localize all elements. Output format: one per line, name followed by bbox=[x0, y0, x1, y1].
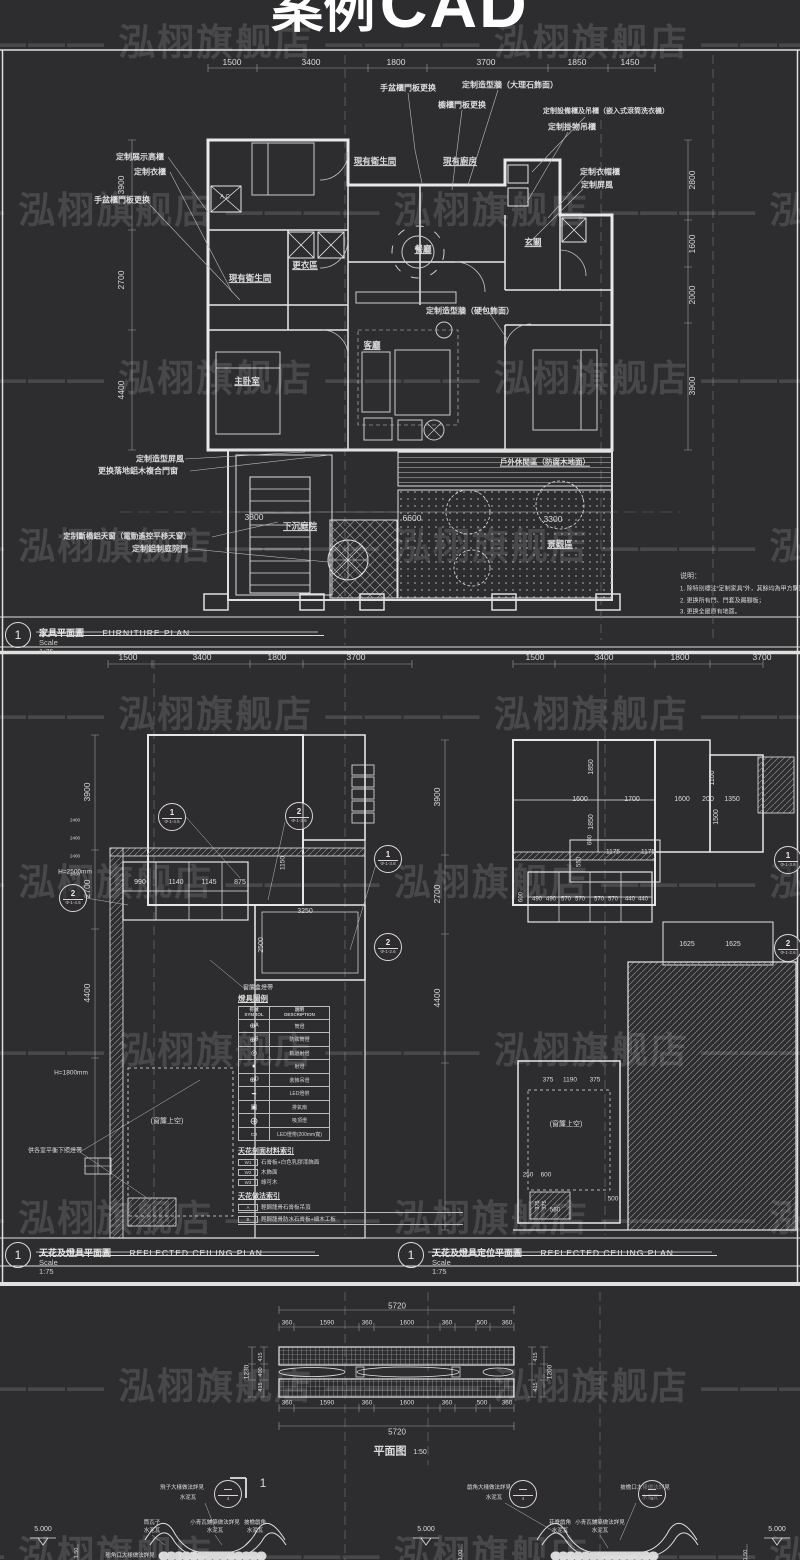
p2-dims: 3900 bbox=[83, 783, 93, 802]
p1-callouts: 手盆櫃門板更换 bbox=[380, 83, 436, 92]
titleblock-en: REFLECTED CEILING PLAN bbox=[129, 1248, 262, 1258]
p2-inner-dims: 1140 bbox=[168, 879, 183, 887]
detail-marker-number: — bbox=[224, 1486, 232, 1494]
p3-dims: 1600 bbox=[400, 1319, 414, 1326]
p2-inner-dims: 1600 bbox=[572, 796, 588, 804]
p2-dims: 1500 bbox=[119, 653, 138, 663]
p3-dims: 360 bbox=[442, 1399, 453, 1406]
detail-marker-number: — bbox=[519, 1486, 527, 1494]
p2-inner-dims: 440 bbox=[638, 897, 648, 904]
p2-inner-dims: 1600 bbox=[674, 796, 690, 804]
p1-dims-top: 1850 bbox=[568, 58, 587, 68]
p2-inner-dims: 1350 bbox=[724, 796, 740, 804]
detail-marker-ref: Φ-1-3.8 bbox=[780, 863, 795, 868]
p1-callouts: 定制鋁制庭院門 bbox=[132, 544, 188, 553]
light-description: 射燈 bbox=[270, 1060, 330, 1074]
detail-marker: 2Φ-1-2.6 bbox=[374, 933, 402, 961]
p2-inner-dims: 1700 bbox=[624, 796, 640, 804]
legend-row: ⊕ᴰ裝飾吊燈 bbox=[239, 1073, 330, 1087]
p2-texts: (窗簾上空) bbox=[550, 1121, 583, 1129]
light-description: 吸頂燈 bbox=[270, 1114, 330, 1128]
p3-dims: 5720 bbox=[388, 1427, 406, 1436]
p3-details: 水泥瓦 bbox=[247, 1528, 264, 1534]
titleblock-scale: Scale 1:75 bbox=[39, 638, 58, 656]
lighting-legend: 燈具圖例 符號SYMBOL說明DESCRIPTION ⊕ᴬ筒燈⊕ᴮ防眩筒燈◎軌道… bbox=[238, 993, 468, 1227]
p3-texts: 平面图 bbox=[374, 1446, 407, 1459]
p1-rooms: 現有衛生間 bbox=[229, 274, 272, 284]
titleblock-en: FURNITURE PLAN bbox=[102, 628, 190, 638]
p2-texts: H=1800mm bbox=[54, 1069, 88, 1076]
legend-row: ▣排氣扇 bbox=[239, 1100, 330, 1114]
detail-marker-ref: Φ-1-4.5 bbox=[164, 820, 179, 825]
p3-dims: 400 bbox=[258, 1367, 264, 1376]
light-description: 防眩筒燈 bbox=[270, 1033, 330, 1047]
p3-texts: 5.000 bbox=[417, 1526, 435, 1534]
p3-texts: 1.00 bbox=[458, 1550, 464, 1560]
p1-notes: 说明： bbox=[680, 573, 701, 581]
p3-dims: 5720 bbox=[388, 1301, 406, 1310]
p1-dims-right: 3900 bbox=[688, 377, 698, 396]
p3-dims: 360 bbox=[442, 1319, 453, 1326]
p2-inner-dims: 1500 bbox=[713, 809, 721, 825]
p1-callouts: 定制設備櫃及吊櫃（嵌入式滾筒洗衣機） bbox=[543, 108, 669, 116]
p3-dims: 360 bbox=[362, 1399, 373, 1406]
legend-row: ━LED燈帶 bbox=[239, 1087, 330, 1101]
p1-dims-top: 3700 bbox=[477, 58, 496, 68]
page-title: 案例 CAD bbox=[0, 0, 800, 42]
p1-rooms: 玄關 bbox=[524, 238, 541, 248]
p1-rooms: 客廳 bbox=[363, 341, 380, 351]
p2-inner-dims: 440 bbox=[625, 897, 635, 904]
detail-marker: —4 bbox=[509, 1480, 537, 1508]
light-symbol-icon: ⊕ᴰ bbox=[239, 1073, 270, 1087]
legend-title: 燈具圖例 bbox=[238, 993, 468, 1004]
light-symbol-icon: ⊕ᴬ bbox=[239, 1019, 270, 1033]
p1-dims-right: 2000 bbox=[688, 286, 698, 305]
legend-header: 說明DESCRIPTION bbox=[270, 1007, 330, 1020]
detail-marker: 2Φ-1-4.5 bbox=[59, 884, 87, 912]
page-title-cn: 案例 bbox=[271, 0, 375, 39]
p3-details: 水泥瓦 bbox=[486, 1495, 503, 1501]
p2-inner-dims: 490 bbox=[546, 897, 556, 904]
p3-dims: 415 bbox=[533, 1382, 539, 1391]
detail-number-circle: 1 bbox=[398, 1242, 424, 1268]
p2-inner-dims: 1625 bbox=[679, 941, 695, 949]
p2-inner-dims: 500 bbox=[608, 1195, 619, 1202]
p1-dims-top: 1450 bbox=[621, 58, 640, 68]
p3-dims: 500 bbox=[477, 1399, 488, 1406]
p2-texts: 窗簾盒燈帶 bbox=[243, 986, 273, 993]
p2-inner-dims: 570 bbox=[575, 897, 585, 904]
p2-inner-dims: 560 bbox=[550, 1206, 561, 1213]
p2-inner-dims: 600 bbox=[541, 1171, 552, 1178]
p2-dims: 4400 bbox=[83, 984, 93, 1003]
p2-inner-dims: 1175 bbox=[641, 848, 655, 855]
page-title-en: CAD bbox=[380, 0, 529, 41]
p2-inner-dims: 550 bbox=[577, 857, 584, 867]
light-description: LED燈帶(200mm寬) bbox=[270, 1127, 330, 1141]
light-symbol-icon: ━ bbox=[239, 1087, 270, 1101]
detail-marker-ref: Φ-1-3.8 bbox=[380, 862, 395, 867]
light-symbol-icon: ▭ bbox=[239, 1127, 270, 1141]
titleblock-en: REFLECTED CEILING PLAN bbox=[540, 1248, 673, 1258]
method-index-title: 天花做法索引 bbox=[238, 1191, 468, 1201]
titleblock-cn: 家具平面圖 bbox=[39, 628, 84, 638]
detail-marker-number: 2 bbox=[786, 940, 790, 948]
p2-dims: 3900 bbox=[433, 788, 443, 807]
p1-dims-top: 1500 bbox=[223, 58, 242, 68]
legend-header: 符號SYMBOL bbox=[239, 1007, 270, 1020]
p1-callouts: 手盆櫃門板更换 bbox=[94, 195, 150, 204]
p1-callouts: 定制展示高櫃 bbox=[116, 152, 164, 161]
p2-inner-dims: 375 bbox=[543, 1076, 554, 1083]
p1-callouts: 定制衣櫃 bbox=[134, 167, 166, 176]
p2-dims: 3400 bbox=[193, 653, 212, 663]
legend-row: ◎軌道射燈 bbox=[239, 1046, 330, 1060]
p1-notes: 2. 更换所有門、門套及踢腳板； bbox=[680, 599, 765, 606]
p2-texts: 2400 bbox=[70, 853, 80, 858]
detail-marker: —4 bbox=[638, 1480, 666, 1508]
p2-inner-dims: 875 bbox=[234, 879, 246, 887]
p3-details: 花脊戧角 bbox=[549, 1520, 571, 1526]
p2-inner-dims: 570 bbox=[608, 897, 618, 904]
p3-dims: 1590 bbox=[320, 1319, 334, 1326]
p2-dims: 3700 bbox=[753, 653, 772, 663]
legend-row: ●射燈 bbox=[239, 1060, 330, 1074]
p1-dims-top: 1800 bbox=[387, 58, 406, 68]
method-desc: 輕鋼龍骨石膏板吊頂 bbox=[261, 1205, 311, 1211]
p3-dims: 415 bbox=[258, 1352, 264, 1361]
p3-texts: 1 bbox=[260, 1477, 267, 1491]
p3-dims: 500 bbox=[477, 1319, 488, 1326]
p3-dims: 415 bbox=[533, 1352, 539, 1361]
p3-details: 翹角口大樣做法詳見 bbox=[105, 1553, 155, 1559]
detail-marker-number: 2 bbox=[386, 939, 390, 947]
material-desc: 石膏板+白色乳膠漆飾面 bbox=[261, 1160, 319, 1166]
detail-marker-ref: Φ-1-3.6 bbox=[291, 819, 306, 824]
p3-details: 小青瓦鋪築做法詳見 bbox=[190, 1520, 240, 1526]
p3-details: 飛子大樣做法詳見 bbox=[160, 1485, 204, 1491]
p2-texts: 供各室平衡下照燈帶 bbox=[28, 1149, 82, 1156]
p2-inner-dims: 1850 bbox=[588, 759, 596, 775]
p3-texts: 1.50 bbox=[743, 1550, 749, 1560]
p2-dims: 3400 bbox=[595, 653, 614, 663]
light-symbol-icon: ◎ bbox=[239, 1046, 270, 1060]
p3-details: 披檐戧角 bbox=[244, 1520, 266, 1526]
p3-details: 水泥瓦 bbox=[144, 1528, 161, 1534]
material-index-row: W2木飾面 bbox=[238, 1168, 468, 1176]
p2-inner-dims: 1625 bbox=[725, 941, 741, 949]
p3-dims: 360 bbox=[282, 1319, 293, 1326]
p2-inner-dims: 250 bbox=[523, 1171, 534, 1178]
p1-rooms: 主卧室 bbox=[234, 377, 260, 387]
detail-marker-ref: Φ-1-4.5 bbox=[65, 901, 80, 906]
light-symbol-icon: ⊕ᴮ bbox=[239, 1033, 270, 1047]
p2-texts: 2400 bbox=[70, 835, 80, 840]
detail-marker-ref: Φ-1-2.6 bbox=[380, 950, 395, 955]
p3-details: 筒瓦子 bbox=[144, 1520, 161, 1526]
titleblock-cn: 天花及燈具定位平面圖 bbox=[432, 1248, 522, 1258]
p2-inner-dims: 1145 bbox=[201, 879, 216, 887]
material-index-title: 天花剖面材料索引 bbox=[238, 1146, 468, 1156]
method-code: B bbox=[238, 1216, 258, 1223]
detail-marker: 1Φ-1-4.5 bbox=[158, 803, 186, 831]
p1-callouts: 定制斷橋鋁天窗（電動遙控平移天窗） bbox=[63, 533, 191, 542]
p2-texts: 2400 bbox=[70, 817, 80, 822]
p3-details: 水泥瓦 bbox=[552, 1528, 569, 1534]
detail-marker: 1Φ-1-3.8 bbox=[774, 846, 800, 874]
p1-court-dims: 6600 bbox=[403, 514, 422, 524]
p1-rooms: 戶外休閒區（防腐木地面） bbox=[500, 459, 590, 468]
p1-rooms: 餐廳 bbox=[414, 245, 431, 255]
p2-inner-dims: 490 bbox=[532, 897, 542, 904]
p1-notes: 1. 除特別標注“定制家具”外，其餘均為甲方購置家具； bbox=[680, 587, 800, 594]
detail-marker: 2Φ-1-2.6 bbox=[774, 934, 800, 962]
detail-number-circle: 1 bbox=[5, 1242, 31, 1268]
light-symbol-icon: ● bbox=[239, 1060, 270, 1074]
p1-rooms: 現有衛生間 bbox=[354, 157, 397, 167]
legend-row: ▭LED燈帶(200mm寬) bbox=[239, 1127, 330, 1141]
p3-details: 小青瓦鋪築做法詳見 bbox=[575, 1520, 625, 1526]
p1-callouts: 更换落地鋁木複合門窗 bbox=[98, 466, 178, 475]
titleblock-rule bbox=[39, 1255, 319, 1256]
method-code: A bbox=[238, 1204, 258, 1211]
p1-dims-left: 2700 bbox=[117, 271, 127, 290]
p2-inner-dims: 200 bbox=[702, 796, 714, 804]
light-symbol-icon: ▣ bbox=[239, 1100, 270, 1114]
titleblock-cn: 天花及燈具平面圖 bbox=[39, 1248, 111, 1258]
p2-inner-dims: 1175 bbox=[606, 848, 620, 855]
p1-court-dims: 3300 bbox=[544, 515, 563, 525]
p1-callouts: 定制造型牆（硬包飾面） bbox=[426, 306, 514, 315]
light-description: 排氣扇 bbox=[270, 1100, 330, 1114]
p3-details: 水泥瓦 bbox=[592, 1528, 609, 1534]
p2-inner-dims: 2500 bbox=[258, 937, 266, 953]
material-index-row: W1石膏板+白色乳膠漆飾面 bbox=[238, 1158, 468, 1166]
p3-texts: 1:50 bbox=[413, 1449, 427, 1457]
light-description: LED燈帶 bbox=[270, 1087, 330, 1101]
p1-dims-top: 3400 bbox=[302, 58, 321, 68]
p3-dims: 360 bbox=[502, 1399, 513, 1406]
p3-dims: 1200 bbox=[546, 1365, 553, 1379]
p3-dims: 360 bbox=[282, 1399, 293, 1406]
p3-dims: 1230 bbox=[243, 1365, 250, 1379]
detail-marker-ref: 4 bbox=[227, 1497, 230, 1502]
p2-inner-dims: 3250 bbox=[297, 908, 313, 916]
p1-dims-right: 1600 bbox=[688, 235, 698, 254]
p1-dims-right: 2800 bbox=[688, 171, 698, 190]
p3-details: 水泥瓦 bbox=[180, 1495, 197, 1501]
light-description: 軌道射燈 bbox=[270, 1046, 330, 1060]
method-index-row: A輕鋼龍骨石膏板吊頂 bbox=[238, 1203, 463, 1213]
p1-rooms: 下沉庭院 bbox=[283, 522, 317, 532]
material-code: W2 bbox=[238, 1169, 258, 1176]
p2-inner-dims: 1850 bbox=[588, 814, 596, 830]
p3-details: 戧角大樣做法詳見 bbox=[467, 1485, 511, 1491]
p1-callouts: 櫥櫃門板更换 bbox=[438, 100, 486, 109]
p1-callouts: 定制造型屏風 bbox=[136, 454, 184, 463]
p3-dims: 360 bbox=[362, 1319, 373, 1326]
p3-dims: 1590 bbox=[320, 1399, 334, 1406]
p1-rooms: 更衣區 bbox=[292, 261, 318, 271]
detail-marker: 2Φ-1-3.6 bbox=[285, 802, 313, 830]
p2-inner-dims: 375 bbox=[590, 1076, 601, 1083]
p1-court-dims: 3800 bbox=[245, 513, 264, 523]
detail-marker-number: 2 bbox=[297, 808, 301, 816]
detail-marker: —4 bbox=[214, 1480, 242, 1508]
titleblock-scale: Scale 1:75 bbox=[432, 1258, 451, 1276]
p2-inner-dims: 600 bbox=[519, 892, 526, 902]
detail-marker-ref: 4 bbox=[522, 1497, 525, 1502]
detail-marker-number: 1 bbox=[386, 851, 390, 859]
p3-texts: 1.50 bbox=[74, 1548, 80, 1559]
legend-table: 符號SYMBOL說明DESCRIPTION ⊕ᴬ筒燈⊕ᴮ防眩筒燈◎軌道射燈●射燈… bbox=[238, 1006, 330, 1141]
legend-row: ⊕ᴬ筒燈 bbox=[239, 1019, 330, 1033]
p1-callouts: 定制掛物吊櫃 bbox=[548, 122, 596, 131]
p2-inner-dims: 375 bbox=[542, 1200, 548, 1209]
detail-number-circle: 1 bbox=[5, 622, 31, 648]
p1-rooms: 景觀區 bbox=[547, 540, 573, 550]
p2-inner-dims: 600 bbox=[588, 835, 595, 845]
p2-inner-dims: 570 bbox=[594, 897, 604, 904]
detail-marker-number: 2 bbox=[71, 890, 75, 898]
detail-marker-number: 1 bbox=[786, 852, 790, 860]
p3-details: 水泥瓦 bbox=[207, 1528, 224, 1534]
p3-texts: 5.000 bbox=[34, 1526, 52, 1534]
titleblock-rule bbox=[432, 1255, 717, 1256]
material-desc: 綠可木 bbox=[261, 1180, 278, 1186]
detail-marker: 1Φ-1-3.8 bbox=[374, 845, 402, 873]
p2-inner-dims: 1100 bbox=[709, 770, 717, 785]
cad-sheet: 案例 CAD ———— 泓栩旗舰店 ———— 泓栩旗舰店 ———— 泓栩旗舰店 … bbox=[0, 0, 800, 1560]
p1-callouts: 定制衣帽櫃 bbox=[580, 167, 620, 176]
material-code: W1 bbox=[238, 1159, 258, 1166]
p1-callouts: 定制造型牆（大理石飾面） bbox=[462, 80, 558, 89]
p1-dims-left: 4400 bbox=[117, 381, 127, 400]
p1-rooms: 現有廚房 bbox=[443, 157, 477, 167]
p3-dims: 415 bbox=[258, 1382, 264, 1391]
p2-dims: 2700 bbox=[433, 885, 443, 904]
p2-inner-dims: 1150 bbox=[279, 856, 286, 870]
titleblock-rule bbox=[39, 635, 324, 636]
p1-notes: 3. 更换全屋原有地面。 bbox=[680, 610, 741, 617]
p2-dims: 1800 bbox=[268, 653, 287, 663]
method-desc: 輕鋼龍骨防水石膏板+細木工板 bbox=[261, 1217, 336, 1223]
detail-marker-number: — bbox=[648, 1486, 656, 1494]
legend-row: ⨁吸頂燈 bbox=[239, 1114, 330, 1128]
p2-inner-dims: 375 bbox=[535, 1200, 541, 1209]
legend-row: ⊕ᴮ防眩筒燈 bbox=[239, 1033, 330, 1047]
p1-callouts: A C bbox=[220, 195, 230, 202]
p2-dims: 3700 bbox=[347, 653, 366, 663]
detail-marker-ref: Φ-1-2.6 bbox=[780, 951, 795, 956]
p3-dims: 360 bbox=[502, 1319, 513, 1326]
light-symbol-icon: ⨁ bbox=[239, 1114, 270, 1128]
light-description: 筒燈 bbox=[270, 1019, 330, 1033]
method-index-row: B輕鋼龍骨防水石膏板+細木工板 bbox=[238, 1215, 463, 1225]
light-description: 裝飾吊燈 bbox=[270, 1073, 330, 1087]
material-desc: 木飾面 bbox=[261, 1170, 278, 1176]
detail-marker-ref: 4 bbox=[651, 1497, 654, 1502]
p2-inner-dims: 990 bbox=[134, 879, 146, 887]
p3-dims: 1600 bbox=[400, 1399, 414, 1406]
material-code: W3 bbox=[238, 1179, 258, 1186]
p2-texts: 2400 bbox=[70, 871, 80, 876]
p2-texts: (窗簾上空) bbox=[151, 1118, 184, 1126]
detail-marker-number: 1 bbox=[170, 809, 174, 817]
p2-dims: 1500 bbox=[526, 653, 545, 663]
material-index-row: W3綠可木 bbox=[238, 1178, 468, 1186]
titleblock-scale: Scale 1:75 bbox=[39, 1258, 58, 1276]
p1-dims-left: 3900 bbox=[117, 176, 127, 195]
p1-callouts: 定制屏風 bbox=[581, 180, 613, 189]
p2-inner-dims: 570 bbox=[561, 897, 571, 904]
p3-texts: 5.000 bbox=[768, 1526, 786, 1534]
p2-inner-dims: 1190 bbox=[563, 1076, 577, 1083]
p2-dims: 1800 bbox=[671, 653, 690, 663]
